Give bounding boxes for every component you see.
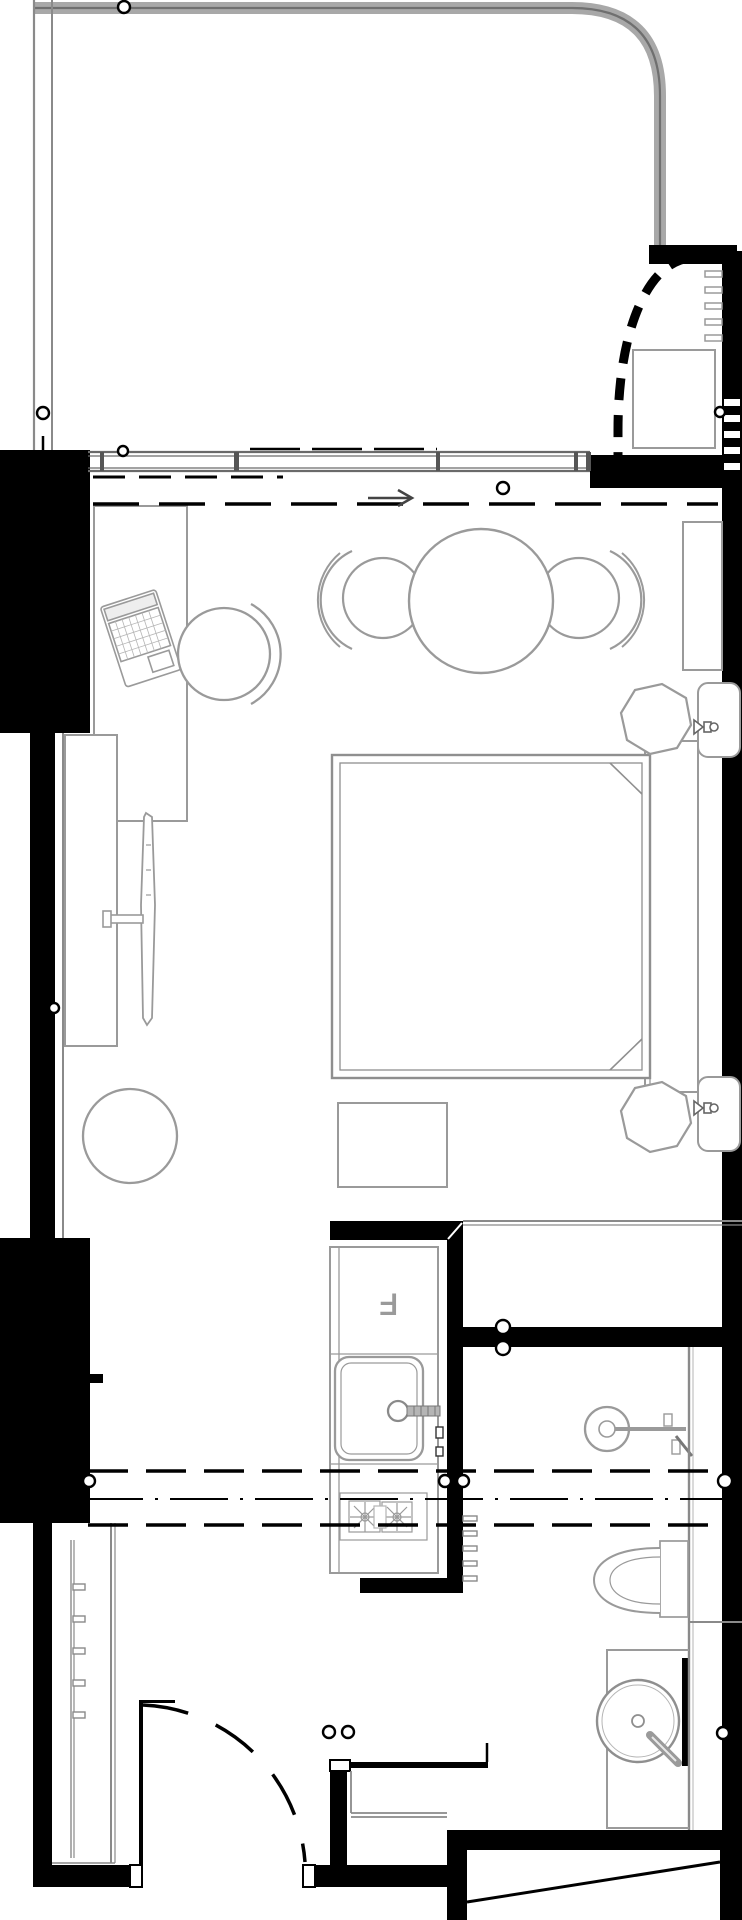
entry-door-leaf	[139, 1702, 143, 1888]
marker-entry-1	[323, 1726, 335, 1738]
wall-bath-bottom	[447, 1830, 727, 1850]
tv-bracket	[107, 915, 143, 923]
media-console	[65, 735, 117, 1046]
marker-left-wall	[37, 407, 49, 419]
wall-left-mid	[30, 733, 55, 1238]
sconce-niche-bottom	[698, 1077, 740, 1151]
tv-mount	[103, 911, 111, 927]
wall-closet-top	[649, 245, 737, 264]
wall-bottom-left	[33, 1865, 130, 1887]
marker-top-wall	[118, 1, 130, 13]
floor-plan: F	[0, 0, 742, 1920]
nightstand-top	[621, 684, 691, 754]
sink-drain	[632, 1715, 644, 1727]
wall-left-upper-block	[0, 450, 90, 733]
marker-closet-wall	[715, 407, 725, 417]
round-dining-table	[409, 529, 553, 673]
marker-track	[497, 482, 509, 494]
nightstand-bottom	[621, 1082, 691, 1152]
marker-window-sill	[118, 446, 128, 456]
door-jamb-left	[130, 1865, 142, 1887]
marker-left-wall-mid	[49, 1003, 59, 1013]
wall-room-top-right	[590, 455, 742, 488]
marker-section-mid-2	[457, 1475, 469, 1487]
wall-hall-partition	[330, 1762, 488, 1768]
marker-section-mid-1	[439, 1475, 451, 1487]
sconce-niche-top	[698, 683, 740, 757]
marker-bath-wall-bottom	[496, 1341, 510, 1355]
marker-section-right	[718, 1474, 732, 1488]
marker-bath-wall-top	[496, 1320, 510, 1334]
wall-bath-bottom-left-stub	[447, 1830, 467, 1920]
marker-section-left	[83, 1475, 95, 1487]
tv-cabinet	[683, 522, 722, 670]
wall-right-bottom-stub	[720, 1838, 742, 1920]
wall-left-lower	[33, 1523, 52, 1887]
fridge-label: F	[380, 1287, 398, 1320]
marker-entry-2	[342, 1726, 354, 1738]
wall-tick	[90, 1374, 103, 1383]
bathroom-mirror	[682, 1658, 688, 1766]
wall-kitchen-right	[447, 1240, 463, 1593]
wall-bottom-entry-right	[315, 1865, 447, 1887]
headboard	[645, 741, 698, 1092]
partition-jamb	[330, 1760, 350, 1771]
entry-door-leaf-tick	[139, 1700, 175, 1703]
outlet-2	[436, 1447, 443, 1456]
door-jamb-right	[303, 1865, 315, 1887]
wall-left-column-block	[0, 1238, 90, 1523]
marker-bath-wall-hook	[717, 1727, 729, 1739]
mattress	[340, 763, 642, 1070]
wall-bed-kitchen-divider	[330, 1221, 463, 1240]
round-pouf	[83, 1089, 177, 1183]
kitchen-faucet	[388, 1401, 408, 1421]
desk-chair	[178, 608, 270, 700]
wall-right	[722, 251, 742, 1850]
decorative-hob	[340, 1493, 427, 1540]
wall-hall-pier	[330, 1768, 347, 1865]
closet-cabinet	[633, 350, 715, 448]
bench-ottoman	[338, 1103, 447, 1187]
wall-kitchen-bottom	[360, 1578, 463, 1593]
hob-burner-right	[383, 1503, 411, 1531]
outlet-1	[436, 1427, 443, 1438]
